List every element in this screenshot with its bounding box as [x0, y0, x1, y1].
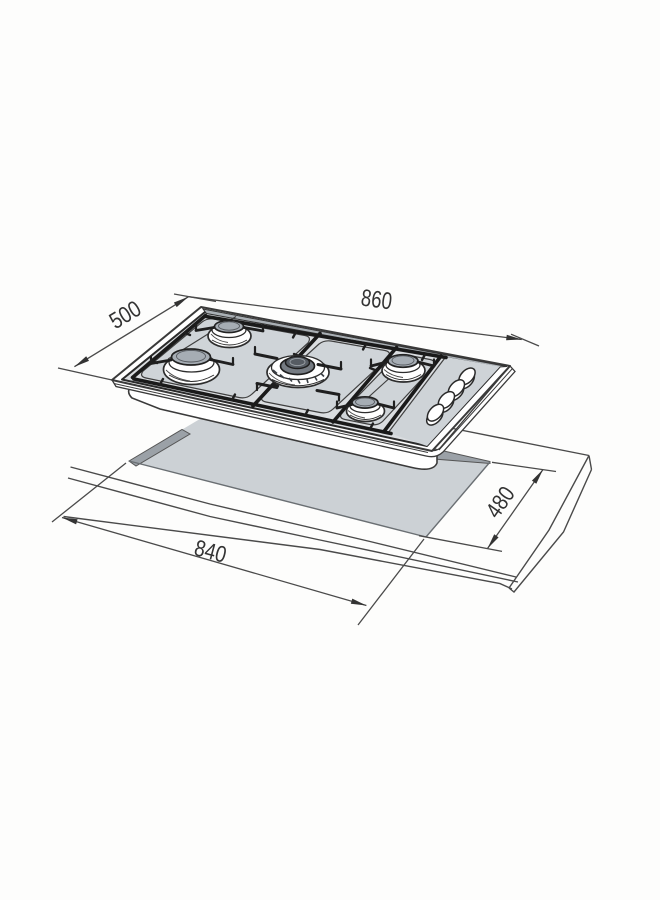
svg-text:860: 860 [359, 285, 393, 316]
